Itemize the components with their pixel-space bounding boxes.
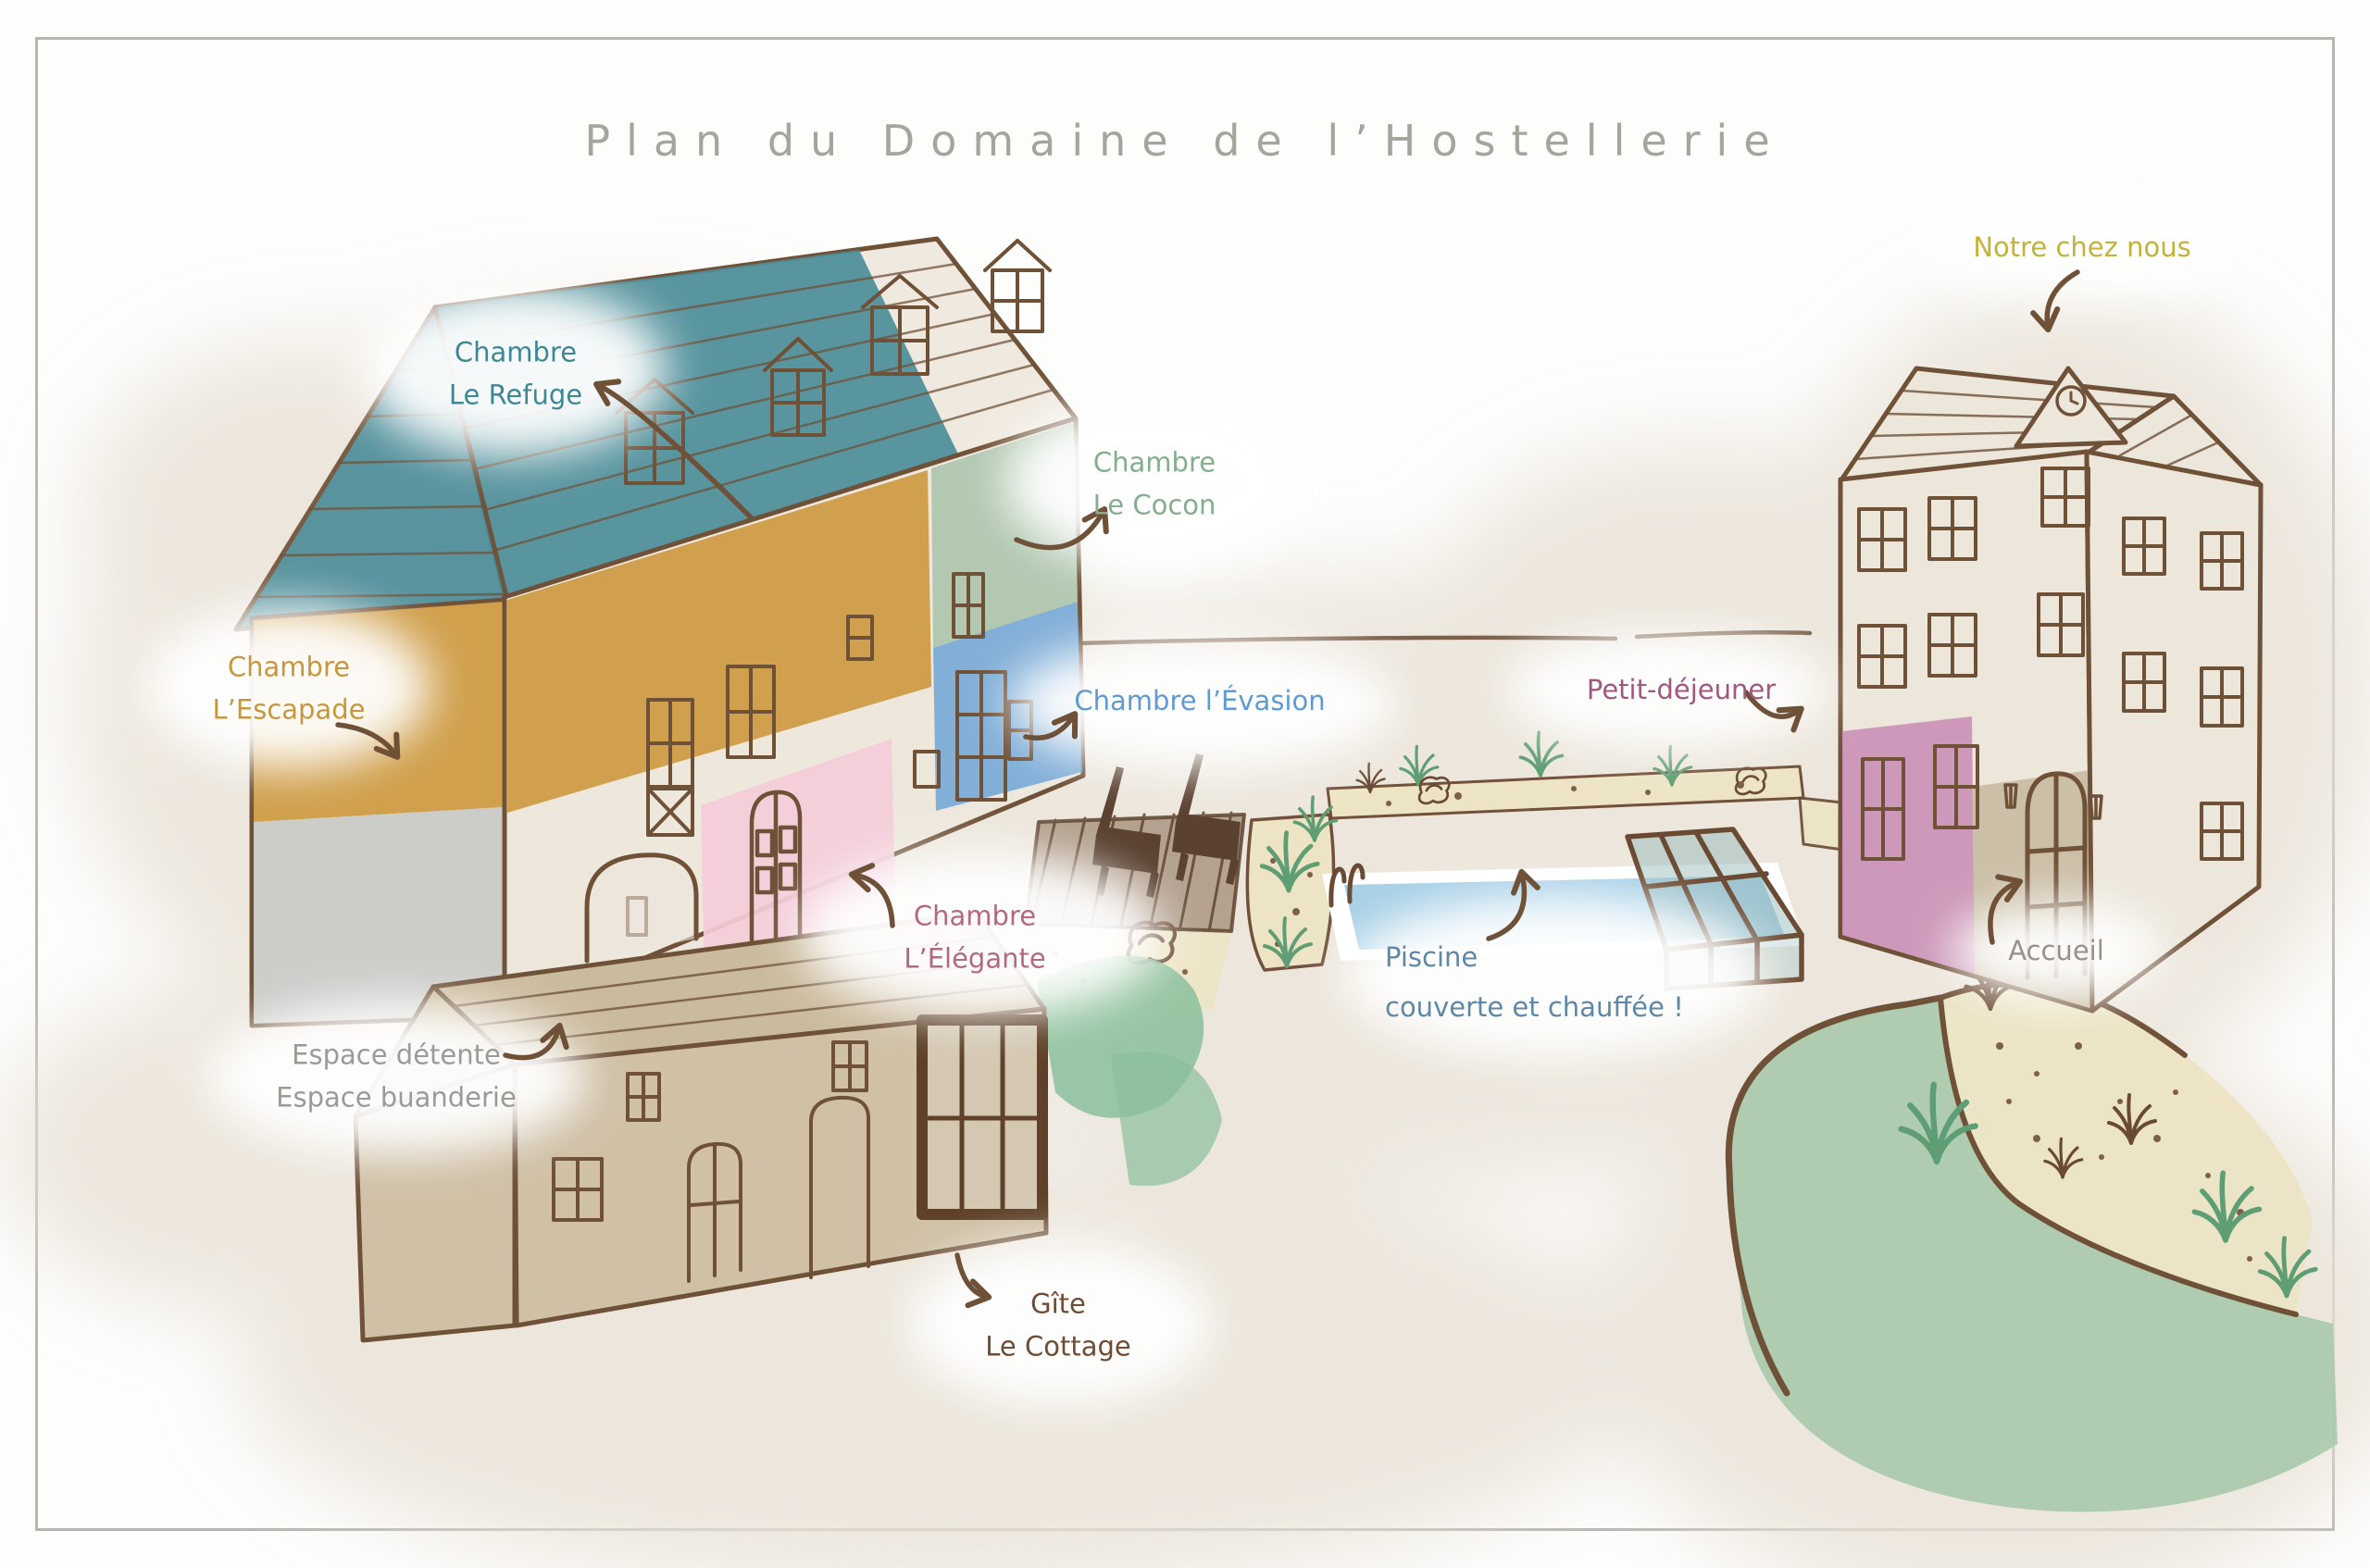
label-accueil: Accueil [2008,929,2104,972]
label-chambre-le-cocon: Chambre Le Cocon [1093,442,1216,528]
label-notre-chez-nous: Notre chez nous [1973,226,2190,268]
lawn-garden [1728,956,2338,1512]
label-gite-le-cottage: Gîte Le Cottage [985,1283,1130,1369]
label-petit-dejeuner: Petit-déjeuner [1587,668,1776,711]
label-chambre-l-evasion: Chambre l’Évasion [1074,679,1325,722]
label-espace-detente-buanderie: Espace détente Espace buanderie [276,1034,517,1120]
label-piscine: Piscine couverte et chauffée ! [1385,933,1684,1032]
label-chambre-l-escapade: Chambre L’Escapade [213,646,366,732]
plan-canvas: Plan du Domaine de l’Hostellerie [0,0,2370,1568]
label-chambre-l-elegante: Chambre L’Élégante [904,895,1045,981]
label-chambre-le-refuge: Chambre Le Refuge [449,331,582,417]
cottage-bay-window [922,1020,1042,1214]
